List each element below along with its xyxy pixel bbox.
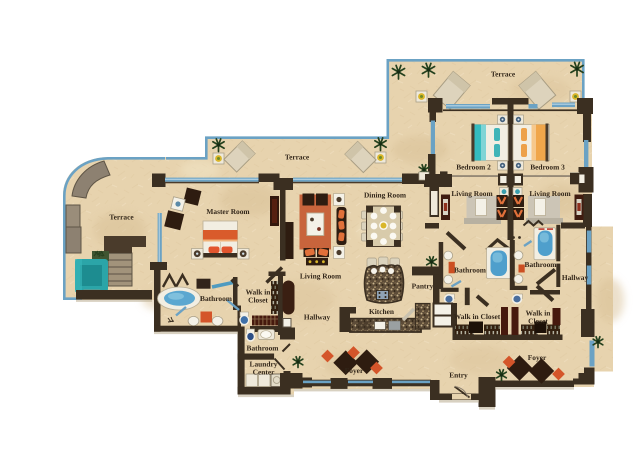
svg-text:Bathroom: Bathroom	[525, 260, 558, 269]
svg-text:Bathroom: Bathroom	[454, 266, 487, 275]
svg-text:Closet: Closet	[248, 296, 268, 305]
svg-text:Terrace: Terrace	[491, 70, 516, 79]
svg-text:Pantry: Pantry	[412, 282, 434, 291]
svg-text:Kitchen: Kitchen	[369, 307, 394, 316]
svg-text:Living Room: Living Room	[529, 189, 571, 198]
svg-text:Bedroom 3: Bedroom 3	[530, 163, 565, 172]
svg-text:Entry: Entry	[449, 371, 468, 380]
svg-text:Hallway: Hallway	[304, 313, 331, 322]
svg-text:Bedroom 2: Bedroom 2	[456, 163, 491, 172]
svg-text:Bathroom: Bathroom	[200, 294, 233, 303]
svg-text:Foyer: Foyer	[528, 353, 547, 362]
svg-text:Closet: Closet	[528, 317, 548, 326]
svg-text:Walk in Closet: Walk in Closet	[454, 312, 501, 321]
svg-text:Living Room: Living Room	[300, 271, 342, 280]
svg-text:Master Room: Master Room	[206, 207, 250, 216]
svg-text:Terrace: Terrace	[285, 153, 310, 162]
svg-text:Bathroom: Bathroom	[247, 344, 280, 353]
svg-text:Hallway: Hallway	[562, 273, 589, 282]
svg-text:Center: Center	[253, 368, 275, 377]
svg-text:Terrace: Terrace	[109, 213, 134, 222]
svg-text:Foyer: Foyer	[345, 366, 364, 375]
svg-text:Living Room: Living Room	[451, 189, 493, 198]
svg-text:Dining Room: Dining Room	[364, 190, 407, 199]
